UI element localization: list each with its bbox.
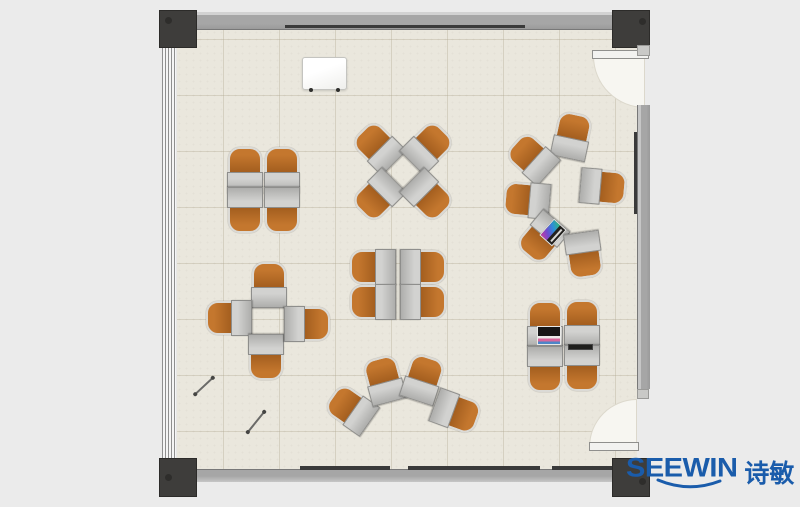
desk-chair-unit bbox=[428, 387, 484, 437]
desk-chair-unit bbox=[350, 249, 396, 285]
desk-chair-unit bbox=[206, 300, 252, 336]
desk-chair-unit bbox=[349, 118, 407, 176]
desk-chair-unit bbox=[564, 300, 600, 346]
laptop bbox=[537, 326, 561, 345]
desk-chair-unit bbox=[251, 262, 287, 308]
desk-chair-unit bbox=[579, 167, 628, 207]
floor-plan: SEEWIN诗敏 bbox=[0, 0, 800, 507]
chair-seat bbox=[302, 307, 330, 341]
desk-top bbox=[251, 287, 287, 308]
desk-chair-unit bbox=[564, 345, 600, 391]
desk-chair-unit bbox=[248, 334, 284, 380]
logo-swoosh-icon bbox=[654, 478, 724, 490]
desk-top bbox=[264, 187, 300, 208]
chair-seat bbox=[228, 147, 262, 175]
pen-on-floor bbox=[195, 377, 214, 395]
desk-chair-unit bbox=[399, 118, 457, 176]
tablet bbox=[568, 344, 593, 350]
chair-seat bbox=[418, 250, 446, 284]
chair-seat bbox=[565, 300, 599, 328]
caster-wheel bbox=[309, 88, 313, 92]
chair-seat bbox=[228, 205, 262, 233]
desk-chair-unit bbox=[264, 187, 300, 233]
desk-top bbox=[400, 249, 421, 285]
desk-chair-unit bbox=[400, 284, 446, 320]
chair-seat bbox=[206, 301, 234, 335]
desk-top bbox=[400, 284, 421, 320]
desk-top bbox=[579, 167, 603, 205]
desk-chair-unit bbox=[349, 167, 407, 225]
chair-seat bbox=[265, 205, 299, 233]
desk-top bbox=[564, 325, 600, 346]
furniture-layer bbox=[0, 0, 800, 507]
desk-top bbox=[231, 300, 252, 336]
desk-chair-unit bbox=[550, 110, 595, 162]
mobile-whiteboard bbox=[302, 57, 347, 90]
desk-chair-unit bbox=[284, 306, 330, 342]
chair-seat bbox=[350, 285, 378, 319]
desk-chair-unit bbox=[227, 187, 263, 233]
pen-on-floor bbox=[247, 411, 265, 432]
chair-seat bbox=[252, 262, 286, 290]
brand-logo: SEEWIN诗敏 bbox=[626, 452, 796, 496]
chair-seat bbox=[350, 250, 378, 284]
desk-chair-unit bbox=[400, 249, 446, 285]
chair-seat bbox=[249, 352, 283, 380]
desk-chair-unit bbox=[350, 284, 396, 320]
desk-chair-unit bbox=[527, 346, 563, 392]
desk-top bbox=[248, 334, 284, 355]
caster-wheel bbox=[336, 88, 340, 92]
desk-chair-unit bbox=[563, 230, 605, 281]
desk-top bbox=[527, 346, 563, 367]
desk-top bbox=[284, 306, 305, 342]
chair-seat bbox=[265, 147, 299, 175]
logo-chinese-text: 诗敏 bbox=[744, 452, 794, 490]
chair-seat bbox=[418, 285, 446, 319]
desk-chair-unit bbox=[399, 167, 457, 225]
chair-seat bbox=[565, 363, 599, 391]
desk-top bbox=[227, 187, 263, 208]
desk-top bbox=[375, 284, 396, 320]
desk-top bbox=[375, 249, 396, 285]
chair-seat bbox=[528, 364, 562, 392]
